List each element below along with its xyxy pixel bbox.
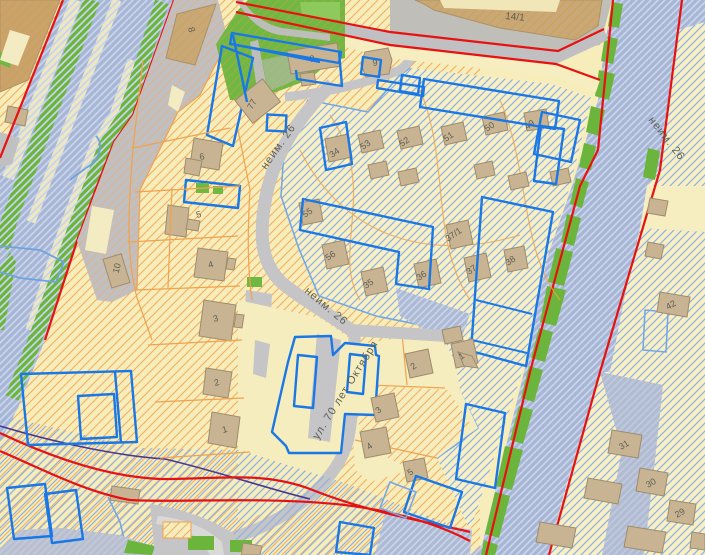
svg-text:14/1: 14/1 <box>505 11 526 24</box>
